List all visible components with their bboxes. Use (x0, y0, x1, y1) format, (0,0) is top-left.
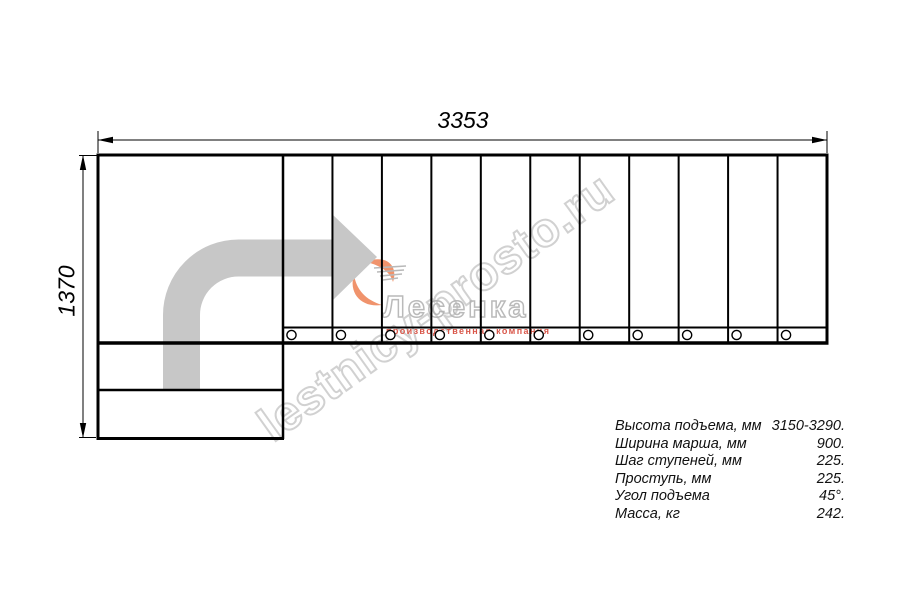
spec-value: 3150-3290. (772, 418, 845, 436)
spec-row: Шаг ступеней, мм 225. (615, 453, 845, 471)
baluster-marker (781, 330, 790, 339)
baluster-marker (485, 330, 494, 339)
spec-value: 45°. (819, 488, 845, 506)
baluster-marker (435, 330, 444, 339)
dim-arrow-right (812, 137, 827, 143)
baluster-marker (633, 330, 642, 339)
direction-arrow-head (333, 215, 377, 300)
spec-row: Ширина марша, мм 900. (615, 436, 845, 454)
dimension-height-label: 1370 (54, 265, 81, 316)
spec-row: Высота подъема, мм 3150-3290. (615, 418, 845, 436)
baluster-marker (287, 330, 296, 339)
spec-label: Проступь, мм (615, 471, 711, 489)
stair-outline (97, 154, 829, 440)
spec-value: 900. (817, 436, 845, 454)
spec-value: 225. (817, 453, 845, 471)
dimension-width-label: 3353 (423, 107, 503, 134)
stair-plan-drawing: lestnicy-prosto.ru Лесенка производствен… (0, 0, 900, 600)
direction-arrow-shaft (182, 258, 334, 390)
baluster-marker (534, 330, 543, 339)
spec-row: Угол подъема 45°. (615, 488, 845, 506)
spec-value: 225. (817, 471, 845, 489)
spec-row: Масса, кг 242. (615, 506, 845, 524)
baluster-marker (336, 330, 345, 339)
spec-value: 242. (817, 506, 845, 524)
dim-arrow-top (80, 155, 86, 170)
direction-arrow (182, 215, 378, 390)
tread-lines (332, 155, 777, 343)
baluster-marker (386, 330, 395, 339)
spec-row: Проступь, мм 225. (615, 471, 845, 489)
spec-table: Высота подъема, мм 3150-3290. Ширина мар… (615, 418, 845, 523)
spec-label: Шаг ступеней, мм (615, 453, 742, 471)
dim-arrow-bottom (80, 423, 86, 438)
spec-label: Угол подъема (615, 488, 710, 506)
spec-label: Высота подъема, мм (615, 418, 762, 436)
baluster-marker (683, 330, 692, 339)
spec-label: Ширина марша, мм (615, 436, 747, 454)
dim-arrow-left (98, 137, 113, 143)
spec-label: Масса, кг (615, 506, 680, 524)
baluster-marker (584, 330, 593, 339)
baluster-marker (732, 330, 741, 339)
baluster-markers (287, 330, 791, 339)
